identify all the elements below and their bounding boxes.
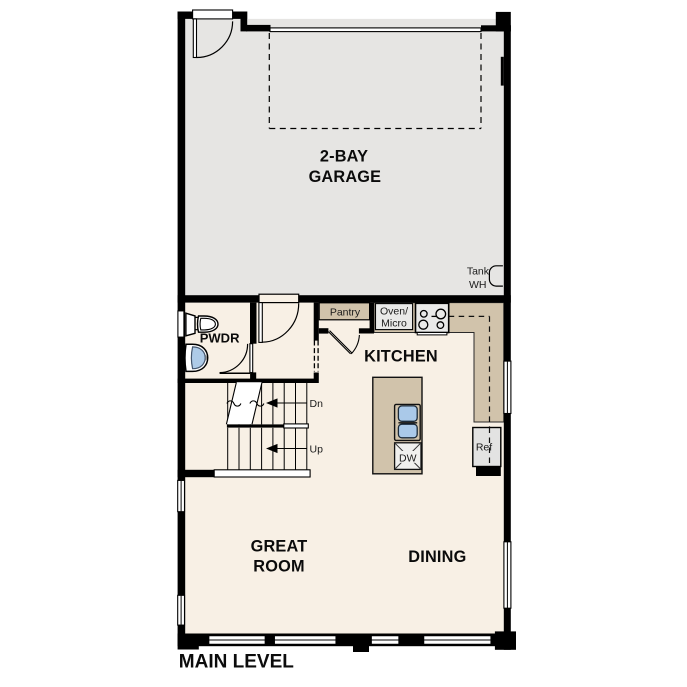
- svg-text:Oven/: Oven/: [380, 306, 408, 318]
- svg-text:ROOM: ROOM: [253, 558, 304, 576]
- svg-text:Up: Up: [310, 443, 324, 455]
- svg-text:DW: DW: [399, 453, 417, 465]
- svg-text:Tank: Tank: [467, 266, 490, 278]
- svg-text:MAIN LEVEL: MAIN LEVEL: [179, 652, 294, 673]
- svg-text:GARAGE: GARAGE: [309, 168, 382, 186]
- svg-text:2-BAY: 2-BAY: [320, 147, 368, 165]
- svg-text:KITCHEN: KITCHEN: [364, 347, 438, 365]
- svg-text:GREAT: GREAT: [251, 538, 308, 556]
- svg-text:Micro: Micro: [381, 318, 407, 330]
- svg-text:Dn: Dn: [310, 398, 324, 410]
- svg-text:DINING: DINING: [408, 548, 466, 566]
- svg-text:WH: WH: [469, 279, 487, 291]
- svg-text:PWDR: PWDR: [200, 330, 240, 345]
- svg-text:Pantry: Pantry: [330, 306, 361, 318]
- svg-text:Ref: Ref: [476, 442, 492, 454]
